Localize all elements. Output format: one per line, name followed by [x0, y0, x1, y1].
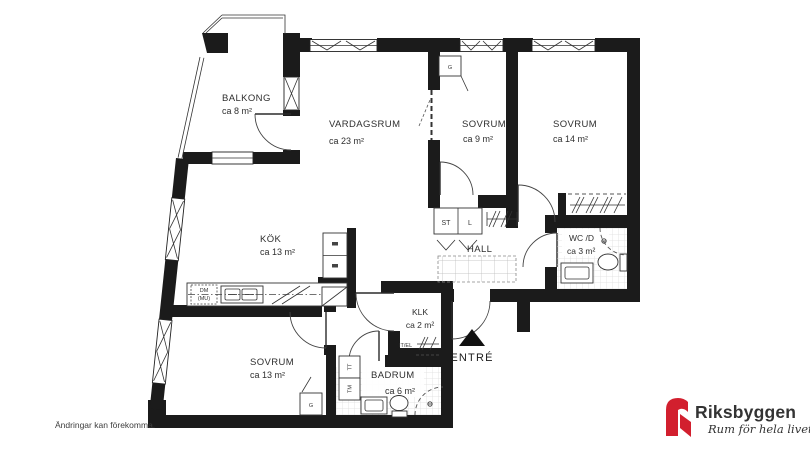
garderob2-label: G	[309, 403, 313, 409]
it-el-label: IT/EL	[399, 343, 412, 349]
badrum-label: BADRUM	[371, 370, 415, 381]
wc-label: WC /D	[569, 233, 594, 243]
window-top-vardagsrum	[310, 40, 377, 52]
klk-area: ca 2 m²	[406, 320, 435, 330]
sovrum9-area: ca 9 m²	[463, 134, 493, 144]
balkong-area: ca 8 m²	[222, 106, 252, 116]
logo-mark-flag-icon	[680, 414, 691, 437]
hall-shoe-cabinet	[438, 256, 516, 282]
room-sovrum9: SOVRUM ca 9 m²	[462, 119, 506, 144]
kok-label: KÖK	[260, 234, 282, 245]
washer-label: TM	[348, 385, 354, 393]
riksbyggen-logo: Riksbyggen Rum för hela livet	[666, 398, 810, 437]
vardagsrum-area: ca 23 m²	[329, 136, 364, 146]
klk-label: KLK	[412, 307, 428, 317]
garderob-sovrum13: G	[300, 377, 322, 415]
room-vardagsrum: VARDAGSRUM ca 23 m²	[329, 119, 400, 146]
badrum-toilet	[390, 396, 408, 418]
dishwasher-label: DM	[200, 288, 209, 294]
balkong-label: BALKONG	[222, 93, 271, 104]
sovrum9-door	[440, 162, 473, 195]
sliding-door-vardagsrum	[419, 90, 432, 140]
klk-door	[356, 293, 394, 331]
wc-toilet	[598, 254, 627, 271]
disclaimer-text: Ändringar kan förekomma.	[55, 420, 155, 430]
garderob1-label: G	[448, 65, 452, 71]
window-top-sovrum9	[460, 40, 503, 52]
sovrum14-wardrobe	[568, 194, 626, 213]
washer-box: TM	[339, 378, 360, 400]
room-sovrum13: SOVRUM ca 13 m²	[250, 357, 294, 380]
floorplan-page: DM (MU) ST L	[0, 0, 810, 455]
entre-label: ENTRÉ	[450, 351, 493, 364]
fridge-freezer-cabinet	[323, 233, 347, 278]
window-balcony-side	[284, 77, 299, 110]
windows	[152, 40, 595, 385]
sovrum13-door	[290, 312, 326, 348]
vardagsrum-label: VARDAGSRUM	[329, 119, 400, 130]
window-balcony-bottom	[212, 152, 253, 164]
micro-label: (MU)	[198, 296, 210, 302]
entry-marker: ENTRÉ	[450, 329, 493, 364]
kitchen-corner-unit	[322, 287, 347, 306]
stad-label: ST	[442, 220, 452, 227]
balcony-door	[255, 114, 291, 150]
badrum-area: ca 6 m²	[385, 386, 415, 396]
wc-area: ca 3 m²	[567, 246, 596, 256]
sovrum14-area: ca 14 m²	[553, 134, 588, 144]
sovrum9-label: SOVRUM	[462, 119, 506, 130]
hall-label: HALL	[467, 244, 492, 255]
room-kok: KÖK ca 13 m²	[260, 234, 295, 257]
brand-tagline: Rum för hela livet	[707, 422, 810, 436]
dryer-label: TT	[348, 363, 354, 370]
sovrum14-label: SOVRUM	[553, 119, 597, 130]
kok-area: ca 13 m²	[260, 247, 295, 257]
balcony-railing	[178, 15, 285, 158]
brand-name: Riksbyggen	[695, 402, 796, 422]
floorplan-svg: DM (MU) ST L	[0, 0, 810, 455]
badrum-sink	[361, 397, 387, 414]
window-top-sovrum14	[532, 40, 595, 52]
sovrum13-area: ca 13 m²	[250, 370, 285, 380]
room-sovrum14: SOVRUM ca 14 m²	[553, 119, 597, 144]
linne-label: L	[468, 220, 472, 227]
sovrum13-label: SOVRUM	[250, 357, 294, 368]
room-balkong: BALKONG ca 8 m²	[222, 93, 271, 116]
dryer-box: TT	[339, 356, 360, 378]
wc-door	[523, 233, 557, 267]
wc-sink	[561, 263, 593, 283]
garderob-sovrum9: G	[439, 56, 468, 91]
room-klk: KLK ca 2 m²	[406, 307, 435, 330]
